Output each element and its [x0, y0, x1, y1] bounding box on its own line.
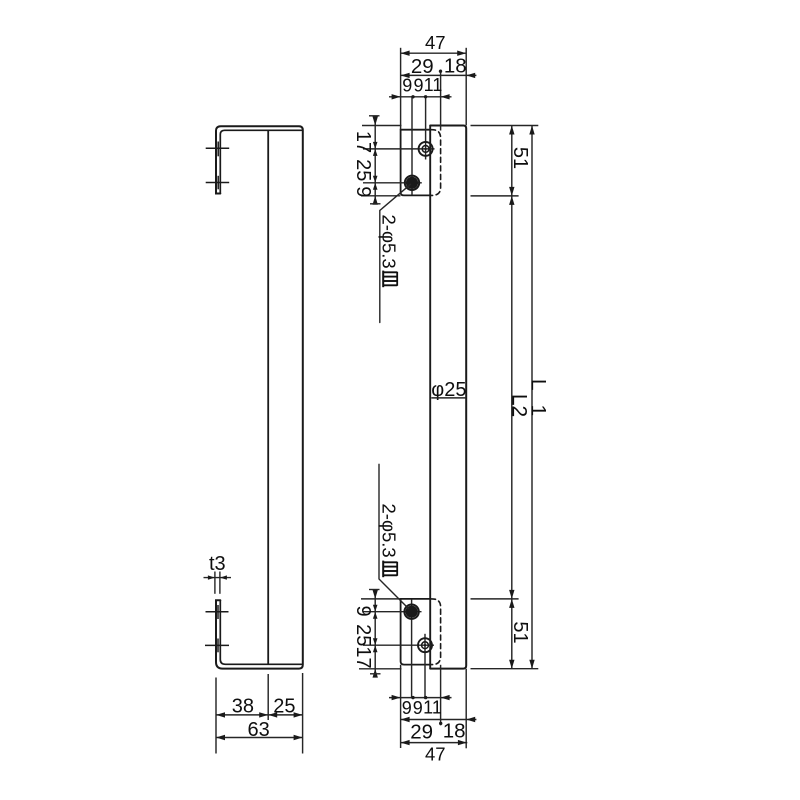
svg-text:9: 9: [352, 186, 374, 197]
svg-text:9: 9: [352, 605, 374, 616]
svg-text:38: 38: [232, 695, 254, 717]
svg-text:25: 25: [273, 695, 295, 717]
svg-text:47: 47: [425, 744, 446, 765]
svg-text:51: 51: [509, 621, 531, 643]
svg-text:25: 25: [352, 159, 374, 181]
svg-text:17: 17: [352, 646, 374, 668]
svg-text:2-φ5.3: 2-φ5.3: [379, 504, 400, 558]
svg-text:25: 25: [352, 624, 374, 646]
svg-text:9: 9: [402, 76, 412, 96]
svg-text:t3: t3: [209, 553, 226, 575]
svg-text:29: 29: [410, 720, 433, 743]
svg-text:9: 9: [402, 698, 412, 718]
svg-text:47: 47: [425, 32, 446, 53]
svg-text:18: 18: [443, 720, 466, 743]
svg-text:51: 51: [509, 147, 531, 169]
svg-text:11: 11: [424, 75, 443, 95]
svg-text:11: 11: [423, 698, 442, 718]
svg-text:L1: L1: [527, 379, 550, 430]
svg-text:2-φ5.3: 2-φ5.3: [379, 215, 400, 269]
svg-text:9: 9: [413, 698, 423, 718]
svg-text:9: 9: [413, 76, 423, 96]
svg-text:63: 63: [247, 719, 269, 741]
svg-text:17: 17: [352, 131, 374, 153]
svg-text:18: 18: [444, 54, 467, 77]
